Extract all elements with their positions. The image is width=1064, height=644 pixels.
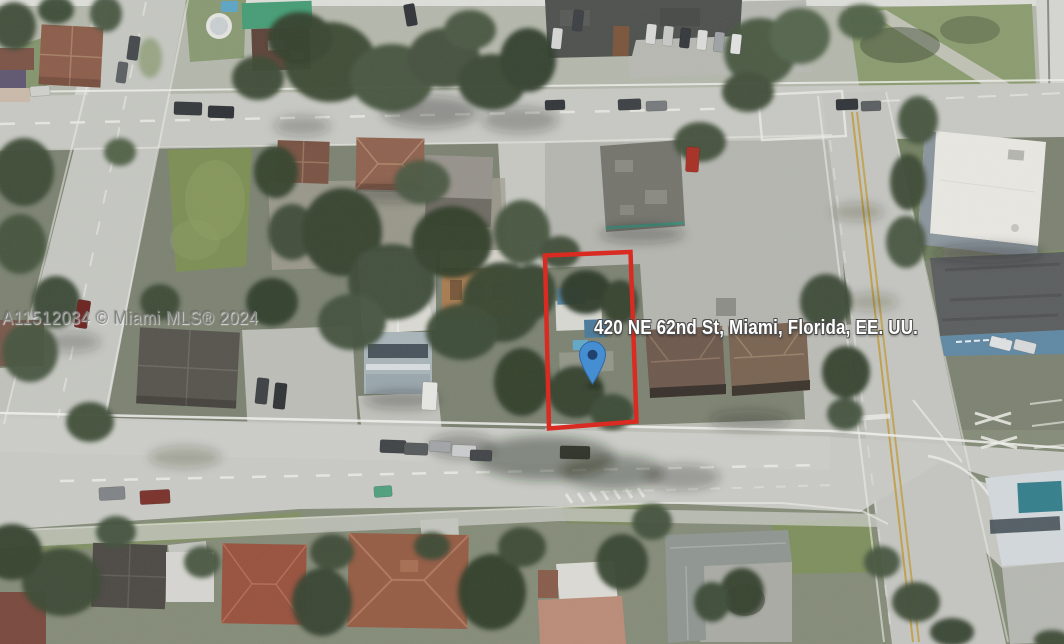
listing-photo-aerial[interactable]: A11512034 © Miami MLS® 2024 420 NE 62nd … xyxy=(0,0,1064,644)
mls-watermark: A11512034 © Miami MLS® 2024 xyxy=(2,308,259,329)
address-label: 420 NE 62nd St, Miami, Florida, EE. UU. xyxy=(594,317,918,340)
